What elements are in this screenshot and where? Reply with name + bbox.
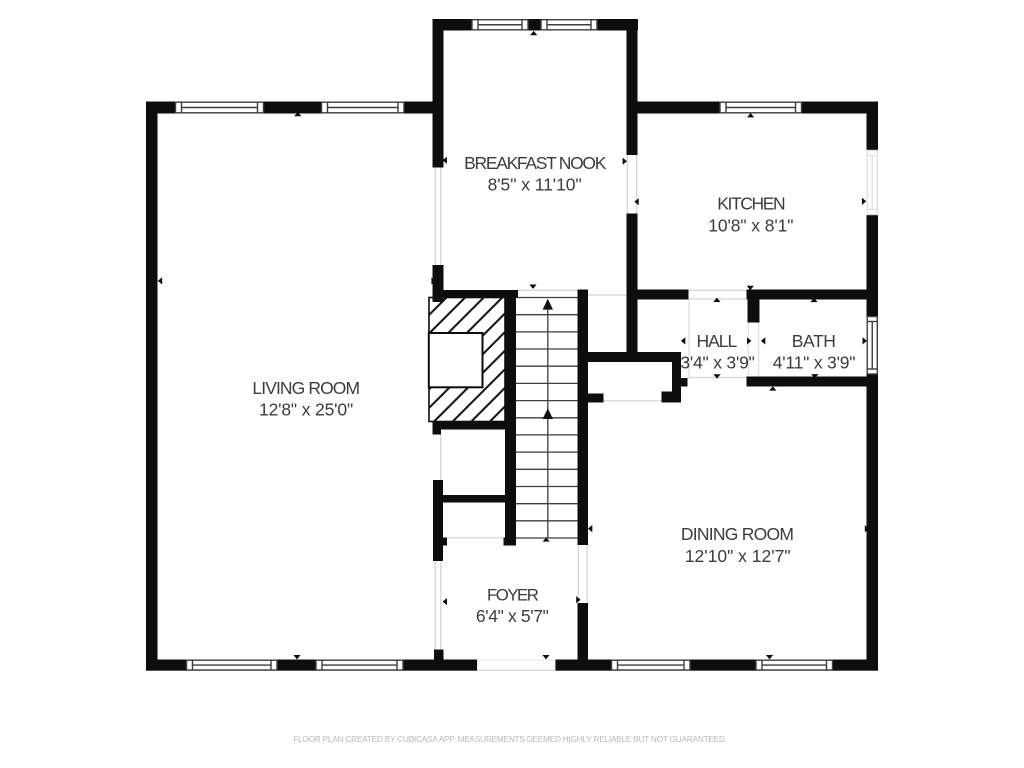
svg-text:6'4" x 5'7": 6'4" x 5'7" [476,606,549,626]
svg-text:DINING ROOM: DINING ROOM [681,524,793,544]
svg-text:12'8" x 25'0": 12'8" x 25'0" [259,399,353,419]
svg-text:4'11" x 3'9": 4'11" x 3'9" [773,353,856,373]
svg-text:KITCHEN: KITCHEN [717,194,785,214]
svg-text:3'4" x 3'9": 3'4" x 3'9" [680,353,754,373]
svg-text:8'5" x 11'10": 8'5" x 11'10" [488,175,582,195]
svg-text:FOYER: FOYER [487,585,539,604]
svg-text:10'8" x 8'1": 10'8" x 8'1" [708,215,793,235]
svg-text:12'10" x 12'7": 12'10" x 12'7" [685,546,791,566]
svg-text:BREAKFAST NOOK: BREAKFAST NOOK [464,153,607,173]
svg-text:LIVING ROOM: LIVING ROOM [252,378,359,398]
svg-text:HALL: HALL [697,331,738,351]
svg-text:FLOOR PLAN CREATED BY CUBICASA: FLOOR PLAN CREATED BY CUBICASA APP. MEAS… [293,734,727,744]
svg-text:BATH: BATH [792,331,836,351]
